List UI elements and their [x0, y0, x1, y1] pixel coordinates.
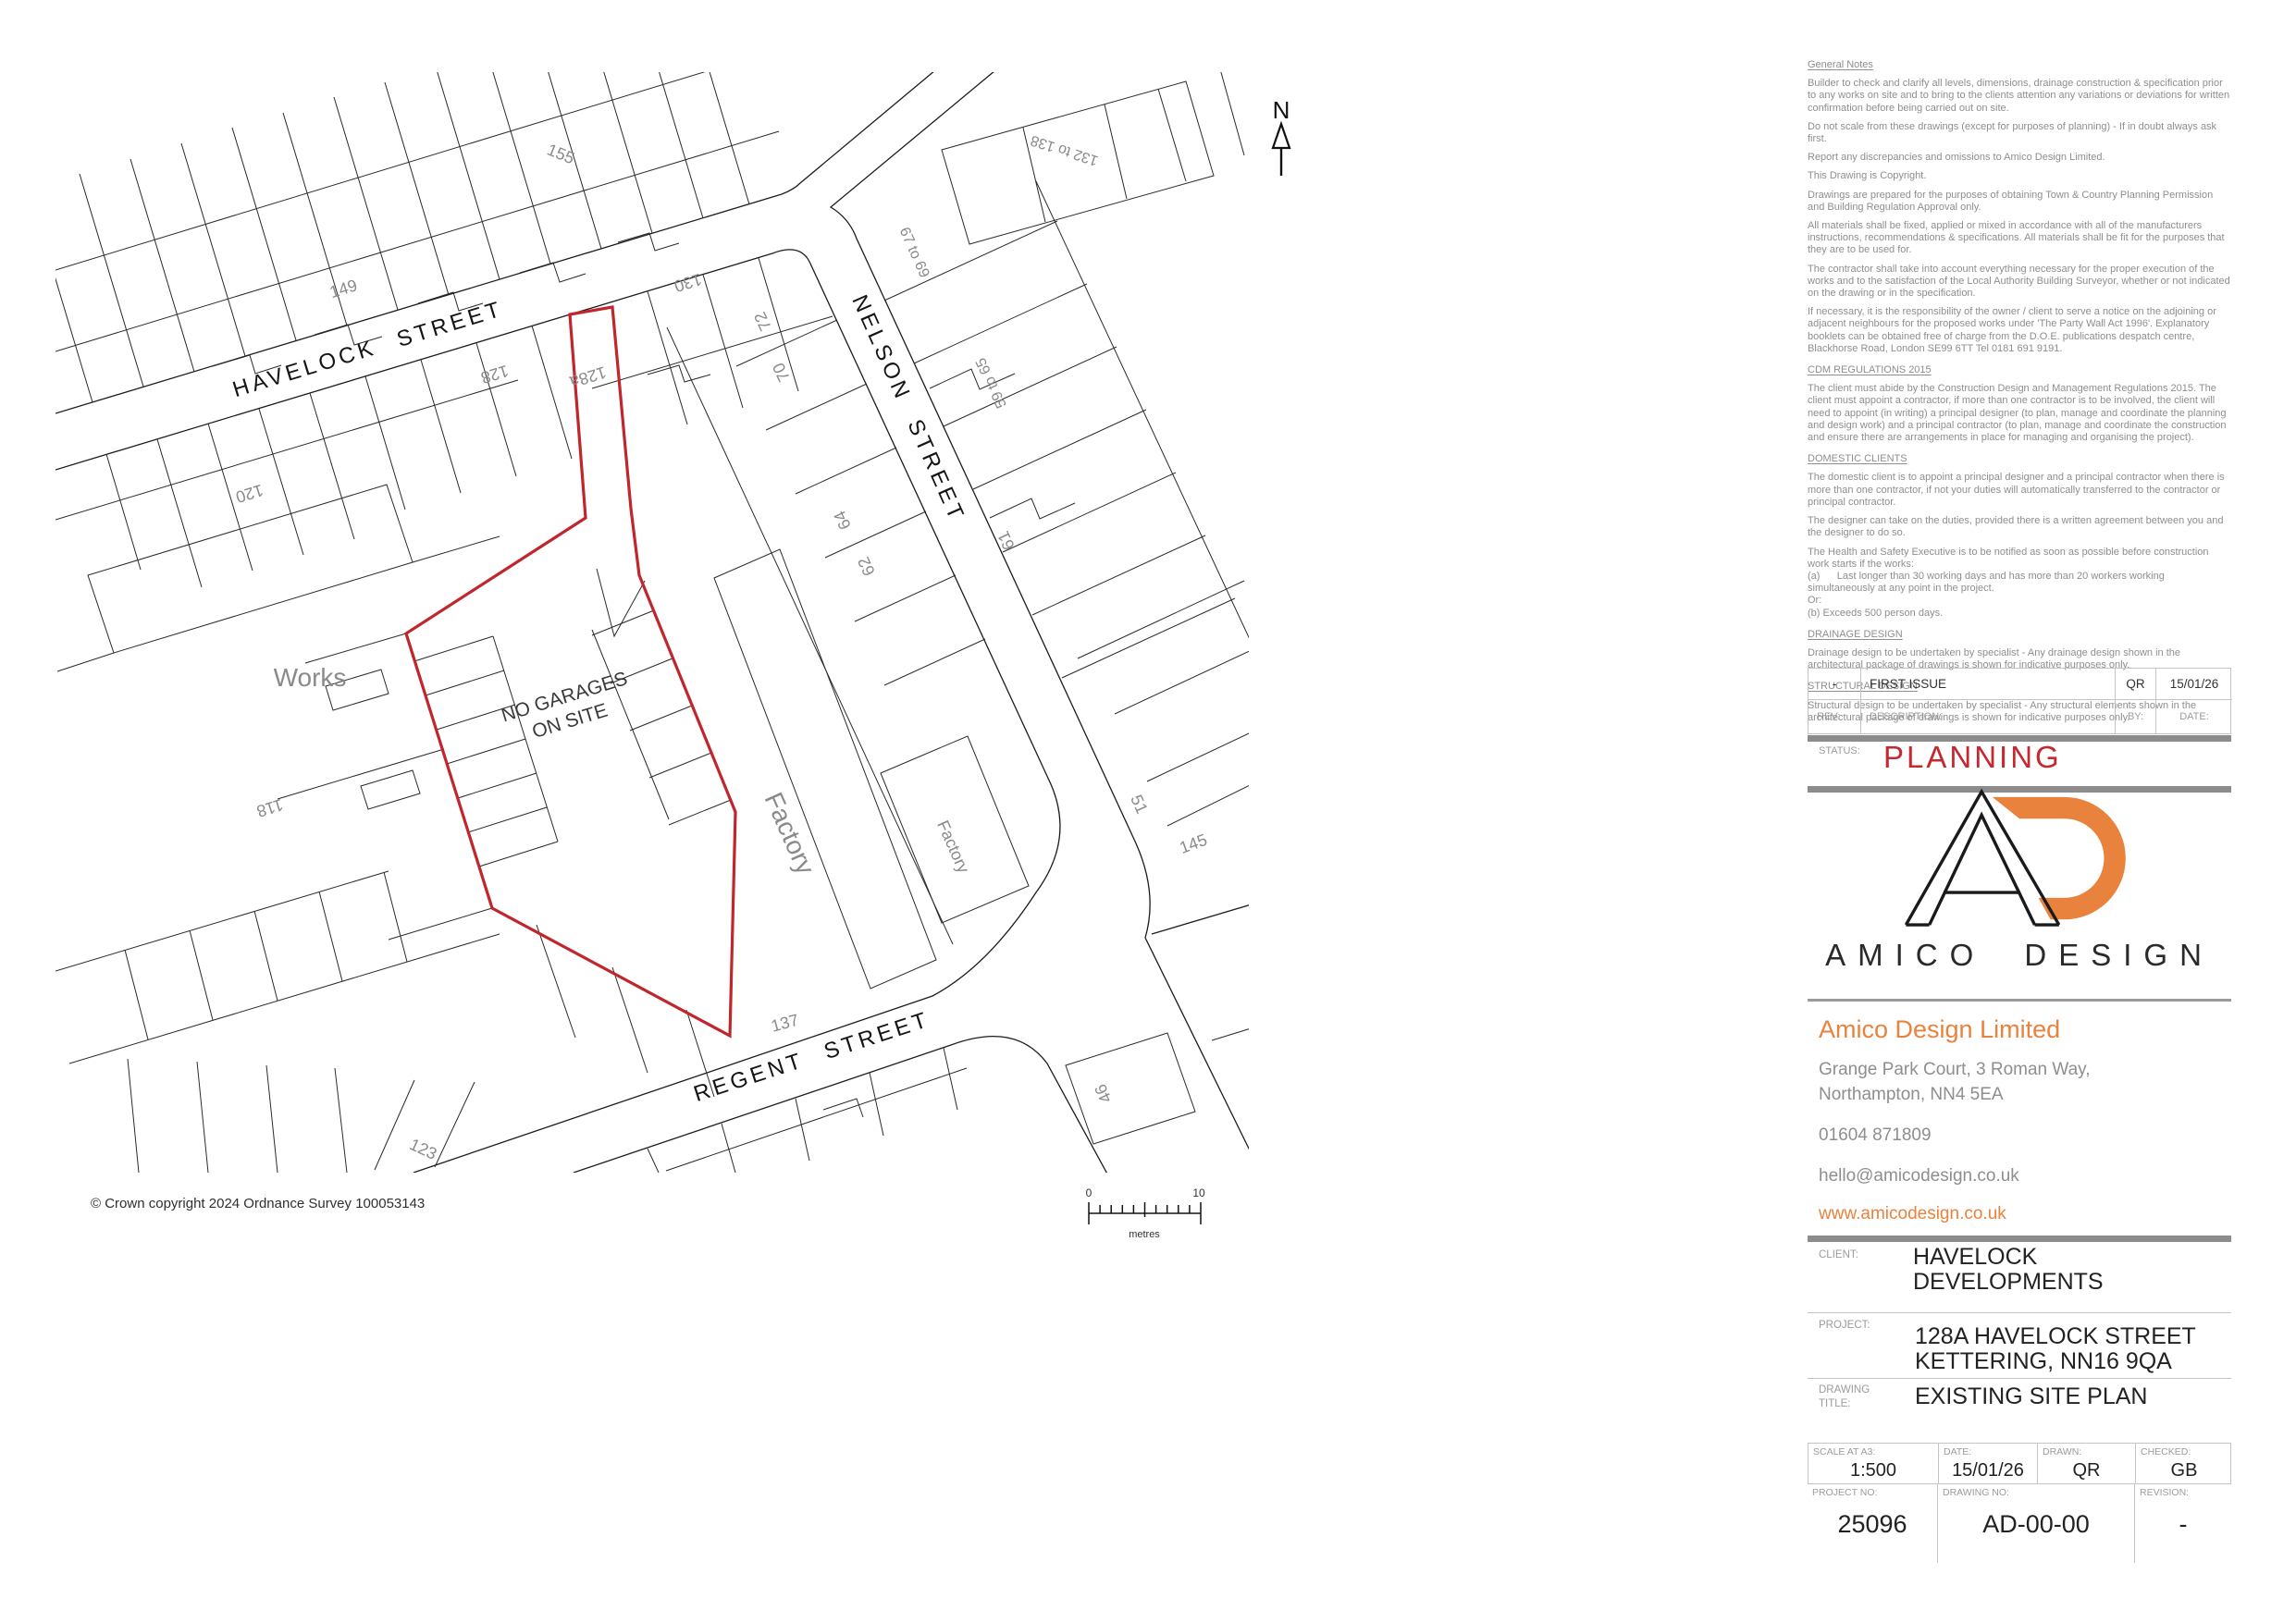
- scale-value: 1:500: [1808, 1460, 1938, 1482]
- drawing-no-value: AD-00-00: [1938, 1510, 2134, 1539]
- revision-header-description: DESCRIPTION:: [1861, 700, 2116, 733]
- note-paragraph: This Drawing is Copyright.: [1808, 170, 2231, 182]
- note-paragraph: The designer can take on the duties, pro…: [1808, 515, 2231, 539]
- company-name: Amico Design Limited: [1819, 1015, 2226, 1044]
- note-paragraph: The client must abide by the Constructio…: [1808, 383, 2231, 444]
- house-number-59-65: 59 to 65: [973, 355, 1010, 411]
- street-label-nelson: NELSON STREET: [846, 291, 969, 526]
- title-block-panel: General Notes Builder to check and clari…: [1796, 0, 2233, 1623]
- client-value: HAVELOCK DEVELOPMENTS: [1913, 1245, 2233, 1295]
- drawing-no-cell: DRAWING NO: AD-00-00: [1938, 1484, 2135, 1563]
- revision-header-date: DATE:: [2156, 700, 2232, 733]
- notes-heading-cdm: CDM REGULATIONS 2015: [1808, 364, 2231, 376]
- contact-block: Amico Design Limited Grange Park Court, …: [1819, 1015, 2226, 1242]
- project-no-label: PROJECT NO:: [1812, 1487, 1877, 1498]
- company-phone: 01604 871809: [1819, 1123, 2226, 1148]
- revision-header-by: BY:: [2116, 700, 2156, 733]
- house-number-149: 149: [327, 276, 360, 301]
- drawn-cell: DRAWN: QR: [2038, 1444, 2136, 1483]
- general-notes: General Notes Builder to check and clari…: [1808, 59, 2231, 731]
- north-arrow-icon: N: [1273, 96, 1290, 176]
- project-label: PROJECT:: [1819, 1319, 1870, 1333]
- date-cell: DATE: 15/01/26: [1939, 1444, 2038, 1483]
- drawing-sheet: HAVELOCK STREET NELSON STREET REGENT STR…: [0, 0, 2296, 1623]
- house-number-145: 145: [1177, 830, 1209, 857]
- house-number-51: 51: [1127, 792, 1151, 816]
- divider-rule: [1808, 999, 2231, 1002]
- revision-date: 15/01/26: [2156, 669, 2232, 700]
- house-number-118: 118: [254, 795, 285, 821]
- section-divider: [1808, 1312, 2231, 1313]
- project-value-line1: 128A HAVELOCK STREET: [1915, 1324, 2196, 1349]
- info-grid-row1: SCALE AT A3: 1:500 DATE: 15/01/26 DRAWN:…: [1808, 1443, 2231, 1483]
- scale-bar-start: 0: [1086, 1187, 1092, 1199]
- company-address-line1: Grange Park Court, 3 Roman Way,: [1819, 1057, 2226, 1082]
- note-paragraph: Drawings are prepared for the purposes o…: [1808, 190, 2231, 214]
- scale-bar-end: 10: [1192, 1187, 1205, 1199]
- site-boundary: [406, 307, 735, 1036]
- logo-wordmark: AMICO DESIGN: [1808, 938, 2231, 973]
- note-paragraph: All materials shall be fixed, applied or…: [1808, 220, 2231, 257]
- note-paragraph: If necessary, it is the responsibility o…: [1808, 306, 2231, 355]
- drawing-title-label-line1: DRAWING: [1819, 1383, 1870, 1397]
- checked-label: CHECKED:: [2141, 1446, 2191, 1457]
- os-copyright: © Crown copyright 2024 Ordnance Survey 1…: [91, 1196, 425, 1211]
- note-paragraph: The Health and Safety Executive is to be…: [1808, 547, 2231, 620]
- drawn-value: QR: [2038, 1460, 2135, 1482]
- site-plan-map: HAVELOCK STREET NELSON STREET REGENT STR…: [0, 0, 1443, 1623]
- revision-header-rev: REV:: [1808, 700, 1861, 733]
- revision-by: QR: [2116, 669, 2156, 700]
- revision-table: - FIRST ISSUE QR 15/01/26 REV: DESCRIPTI…: [1808, 668, 2231, 734]
- status-value: PLANNING: [1883, 740, 2062, 775]
- note-paragraph: Do not scale from these drawings (except…: [1808, 121, 2231, 145]
- notes-heading-general: General Notes: [1808, 59, 2231, 71]
- scale-label: SCALE AT A3:: [1813, 1446, 1875, 1457]
- house-number-67-69: 67 to 69: [896, 225, 932, 280]
- scale-bar-unit: metres: [1129, 1229, 1160, 1240]
- house-number-46: 46: [1091, 1081, 1116, 1106]
- revision-value: -: [2135, 1510, 2231, 1539]
- scale-cell: SCALE AT A3: 1:500: [1808, 1444, 1939, 1483]
- project-no-value: 25096: [1808, 1510, 1937, 1539]
- house-number-64: 64: [830, 508, 855, 533]
- house-number-132-138: 132 to 138: [1029, 131, 1100, 168]
- house-number-155: 155: [545, 141, 577, 168]
- note-paragraph: Builder to check and clarify all levels,…: [1808, 78, 2231, 115]
- notes-heading-domestic: DOMESTIC CLIENTS: [1808, 453, 2231, 465]
- svg-text:N: N: [1273, 96, 1290, 124]
- note-paragraph: The contractor shall take into account e…: [1808, 264, 2231, 301]
- date-label: DATE:: [1944, 1446, 1971, 1457]
- company-email: hello@amicodesign.co.uk: [1819, 1163, 2226, 1188]
- house-number-123: 123: [407, 1135, 440, 1163]
- note-paragraph: Report any discrepancies and omissions t…: [1808, 152, 2231, 164]
- status-label: STATUS:: [1819, 745, 1860, 756]
- company-address-line2: Northampton, NN4 5EA: [1819, 1082, 2226, 1107]
- amico-design-logo: [1884, 788, 2154, 932]
- info-grid-row2: PROJECT NO: 25096 DRAWING NO: AD-00-00 R…: [1808, 1483, 2231, 1563]
- date-value: 15/01/26: [1939, 1460, 2037, 1482]
- checked-cell: CHECKED: GB: [2136, 1444, 2232, 1483]
- house-number-61: 61: [994, 528, 1018, 553]
- scale-bar: [1089, 1202, 1201, 1224]
- section-divider: [1808, 1378, 2231, 1379]
- notes-heading-drainage: DRAINAGE DESIGN: [1808, 629, 2231, 641]
- revision-cell: REVISION: -: [2135, 1484, 2231, 1563]
- revision-rev: -: [1808, 669, 1861, 700]
- revision-description: FIRST ISSUE: [1861, 669, 2116, 700]
- house-number-62: 62: [854, 554, 879, 579]
- drawn-label: DRAWN:: [2043, 1446, 2081, 1457]
- drawing-title-value: EXISTING SITE PLAN: [1915, 1384, 2147, 1409]
- checked-value: GB: [2136, 1460, 2232, 1482]
- client-label: CLIENT:: [1819, 1248, 1858, 1262]
- drawing-title-label-line2: TITLE:: [1819, 1397, 1851, 1411]
- house-number-137: 137: [769, 1011, 800, 1036]
- divider-bar: [1808, 1236, 2231, 1242]
- project-value-line2: KETTERING, NN16 9QA: [1915, 1349, 2172, 1374]
- note-paragraph: The domestic client is to appoint a prin…: [1808, 472, 2231, 509]
- building-outlines: [29, 0, 1332, 1173]
- project-no-cell: PROJECT NO: 25096: [1808, 1484, 1938, 1563]
- house-number-130: 130: [672, 270, 704, 296]
- factory-label-small: Factory: [933, 818, 973, 876]
- company-website[interactable]: www.amicodesign.co.uk: [1819, 1204, 2226, 1224]
- revision-label: REVISION:: [2140, 1487, 2189, 1498]
- house-number-120: 120: [233, 481, 265, 507]
- drawing-no-label: DRAWING NO:: [1943, 1487, 2009, 1498]
- house-number-72: 72: [750, 309, 775, 334]
- works-label: Works: [274, 663, 347, 692]
